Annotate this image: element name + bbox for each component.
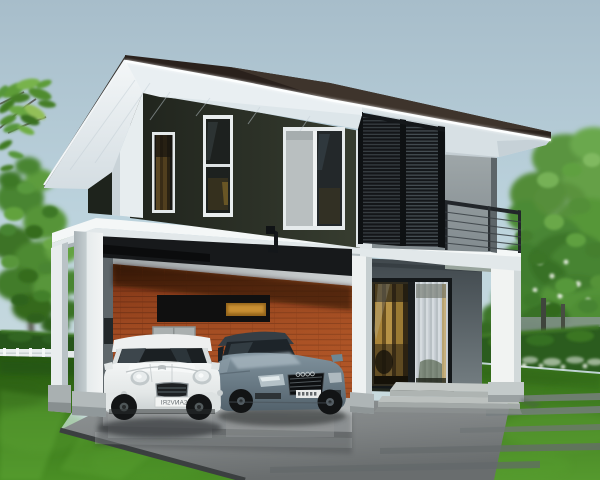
svg-text:IЯ2VͶA2: IЯ2VͶA2 <box>161 400 188 407</box>
